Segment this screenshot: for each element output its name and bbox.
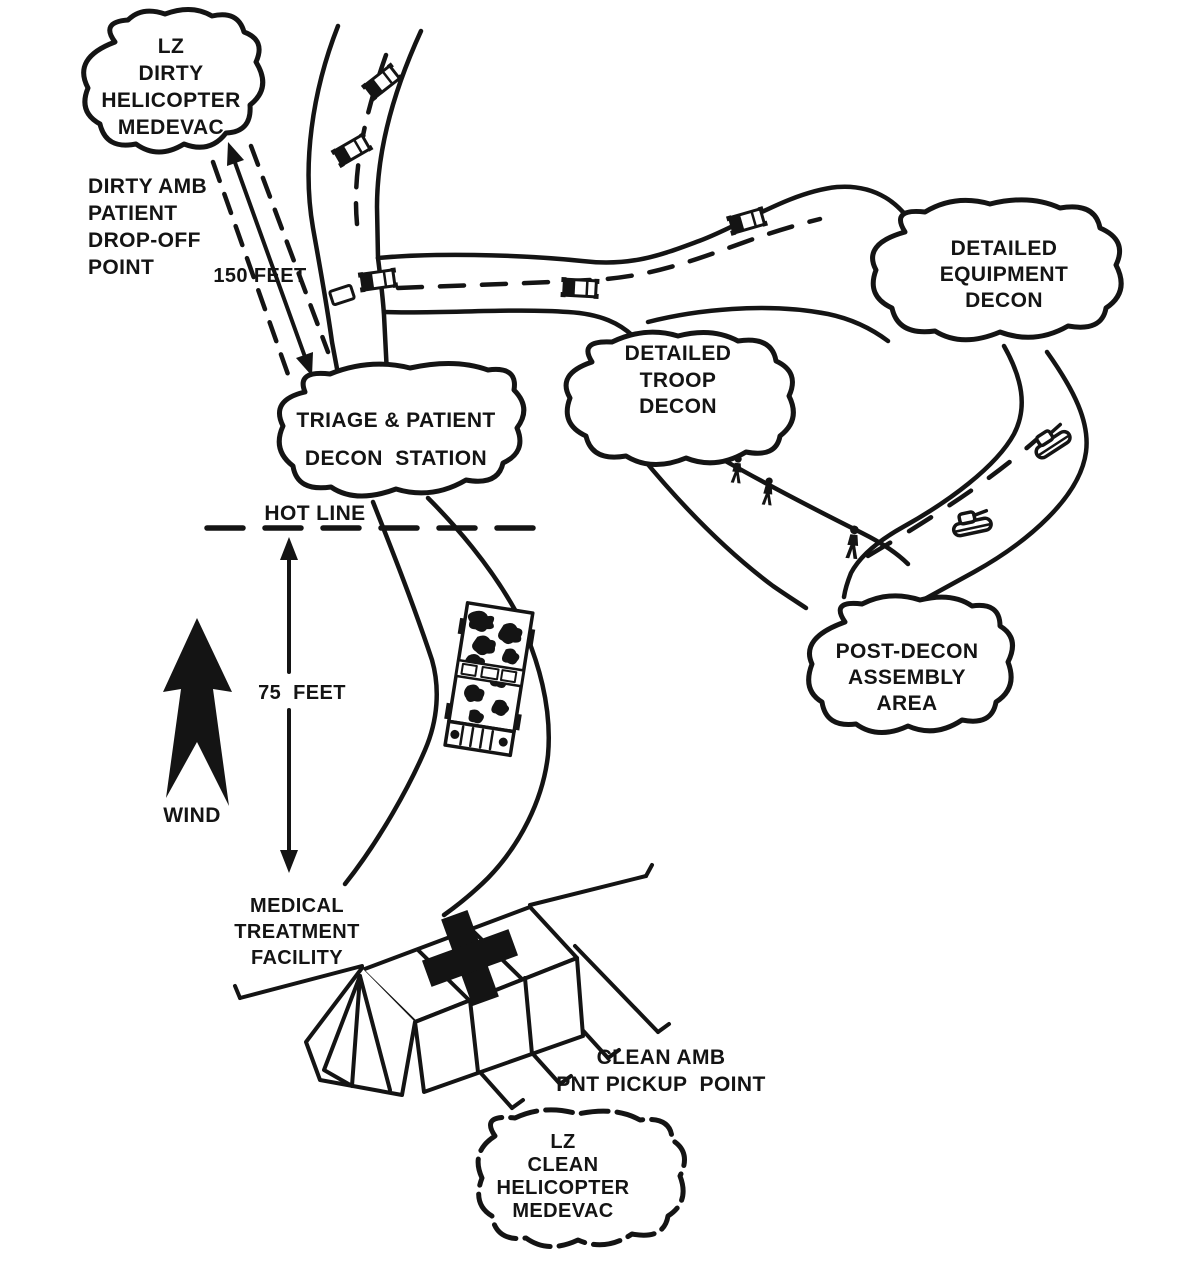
wind-arrow (163, 618, 232, 806)
arrowhead-up (227, 142, 244, 166)
truck-icon (358, 267, 398, 292)
trailer-icon (329, 285, 354, 305)
road-edge (378, 187, 931, 263)
camouflage-ambulance-icon (440, 602, 538, 756)
path-edge (641, 456, 806, 608)
label-detailed-equipment-decon: DETAILED EQUIPMENT DECON (894, 236, 1114, 314)
person-icon (845, 525, 860, 559)
label-wind: WIND (152, 802, 232, 829)
tank-icon (951, 508, 993, 536)
label-150-feet: 150 FEET (205, 263, 315, 290)
arrowhead-up (280, 537, 298, 560)
label-lz-clean-medevac: LZ CLEAN HELICOPTER MEDEVAC (453, 1131, 673, 1223)
road-edge (309, 26, 338, 374)
label-clean-amb-pickup: CLEAN AMB PNT PICKUP POINT (521, 1044, 801, 1098)
label-hot-line: HOT LINE (260, 500, 370, 527)
decon-site-diagram: LZ DIRTY HELICOPTER MEDEVAC DIRTY AMB PA… (0, 0, 1200, 1264)
label-post-decon-assembly: POST-DECON ASSEMBLY AREA (797, 639, 1017, 717)
truck-icon (331, 132, 374, 168)
label-detailed-troop-decon: DETAILED TROOP DECON (578, 341, 778, 421)
label-75-feet: 75 FEET (247, 680, 357, 707)
arrowhead-down (280, 850, 298, 873)
road-edge (923, 352, 1087, 600)
label-triage-decon-station: TRIAGE & PATIENT DECON STATION (276, 402, 516, 478)
truck-icon (561, 277, 600, 299)
walking-troops (731, 455, 861, 559)
label-medical-treatment-facility: MEDICAL TREATMENT FACILITY (187, 893, 407, 971)
truck-icon (726, 206, 768, 236)
road-edge (345, 502, 437, 884)
label-lz-dirty-medevac: LZ DIRTY HELICOPTER MEDEVAC (76, 33, 266, 141)
